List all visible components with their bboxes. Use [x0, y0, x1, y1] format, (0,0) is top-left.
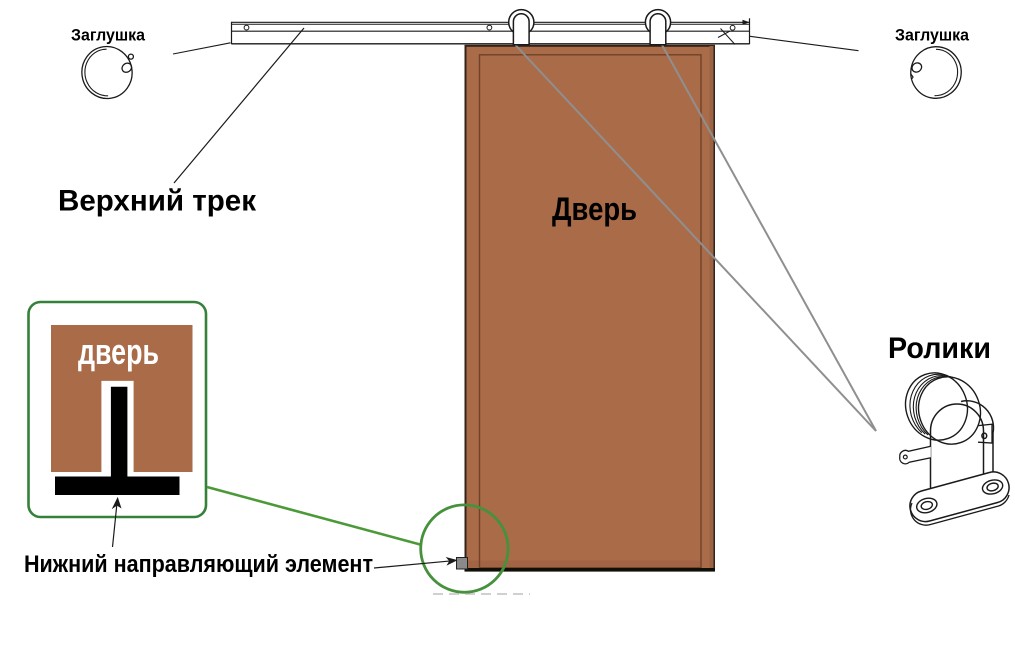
- svg-text:Заглушка: Заглушка: [71, 26, 145, 45]
- svg-text:Верхний трек: Верхний трек: [58, 185, 257, 218]
- svg-text:дверь: дверь: [78, 331, 159, 372]
- svg-text:Заглушка: Заглушка: [895, 26, 969, 45]
- svg-text:Нижний направляющий элемент: Нижний направляющий элемент: [24, 551, 373, 578]
- svg-text:Дверь: Дверь: [552, 191, 637, 227]
- svg-text:Ролики: Ролики: [888, 332, 991, 365]
